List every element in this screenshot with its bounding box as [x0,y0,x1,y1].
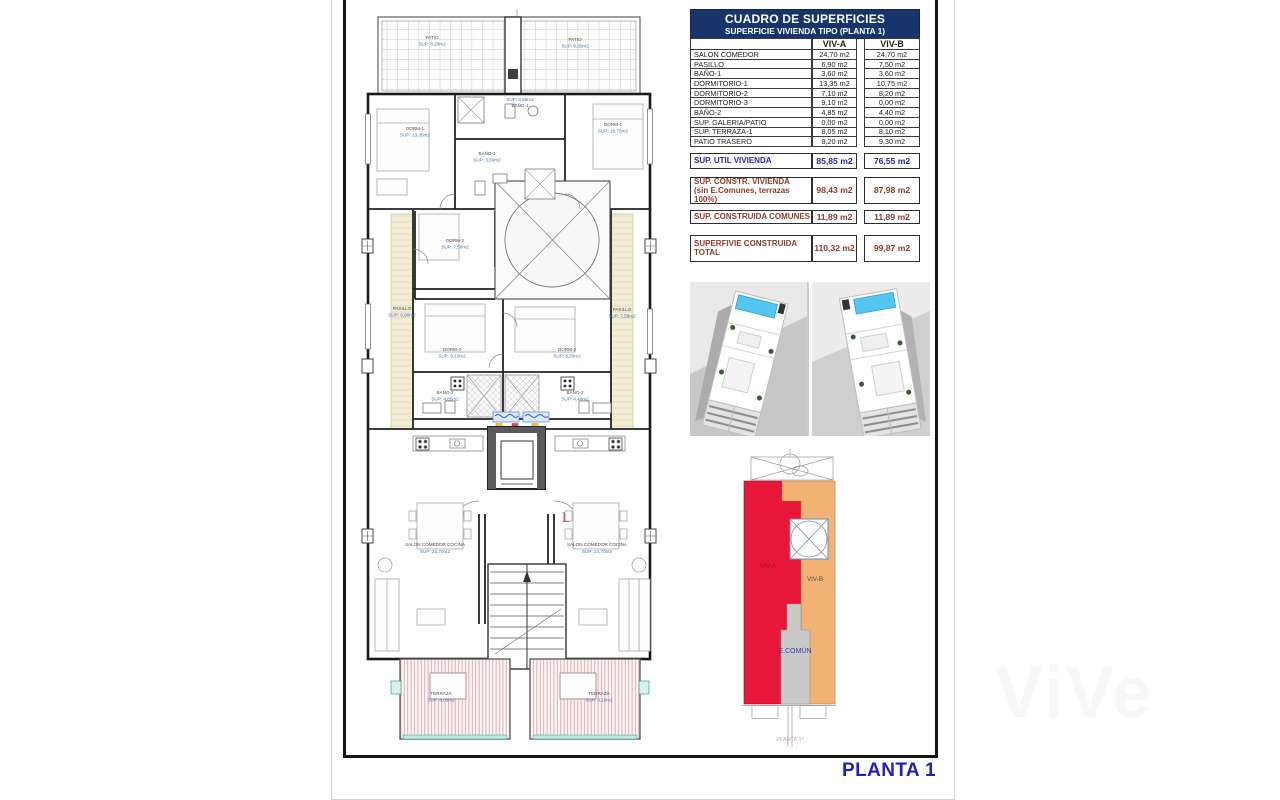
table-subtitle: SUPERFICIE VIVIENDA TIPO (PLANTA 1) [691,26,919,36]
room-sup: SUP: 8,10m2 [585,698,613,703]
room-label: TERRAZA [430,691,452,696]
room-sup: SUP: 8,20m2 [553,354,581,359]
table-cell: 9,30 m2 [864,136,920,147]
summary-label: SUP. CONSTRUIDA COMUNES [690,210,812,224]
summary-label: SUPERFIVIE CONSTRUIDATOTAL [690,235,812,262]
room-sup: SUP: 7,58m2 [608,314,636,319]
summary-value-b: 99,87 m2 [864,235,920,262]
summary-value-a: 85,85 m2 [812,153,857,169]
room-sup: SUP: 24,70m2 [582,549,612,554]
room-label: PASILLO [613,307,632,312]
summary-value-b: 11,89 m2 [864,210,920,224]
room-label: DORM-2 [558,347,577,352]
room-sup: SUP: 24,70m2 [420,549,450,554]
sheet-title: PLANTA 1 [790,760,936,782]
room-sup: SUP: 9,10m2 [438,354,466,359]
room-label: DORM-2 [446,238,465,243]
table-summary-row: SUPERFIVIE CONSTRUIDATOTAL110,32 m299,87… [690,235,920,262]
room-label: DORM-1 [604,122,623,127]
table-summary: SUP. UTIL VIVIENDA85,85 m276,55 m2SUP. C… [690,153,920,262]
diagram-roof-outline [751,449,833,480]
summary-gap [857,235,864,262]
floor-plan: A B [355,9,685,757]
room-label: DORM-1 [406,126,425,131]
room-label: SALON COMEDOR COCINA [567,542,628,547]
room-label: BAÑO-2 [566,389,584,395]
table-cell: PATIO TRASERO [690,136,812,147]
diagram-caption: PLANTA 1ª [776,736,804,743]
summary-gap [857,177,864,204]
summary-label: SUP. CONSTR. VIVIENDA(sin E.Comunes, ter… [690,177,812,204]
patio-block [378,17,640,95]
room-sup: SUP: 3,60m2 [506,97,534,102]
table-title: CUADRO DE SUPERFICIES [691,13,919,26]
diagram-comun-label: E.COMÚN [778,646,811,655]
room-sup: SUP: 4,85m2 [431,397,459,402]
elevator [488,427,545,489]
table-summary-row: SUP. CONSTRUIDA COMUNES11,89 m211,89 m2 [690,210,920,224]
table-cell: 8,20 m2 [812,136,857,147]
table-rows: SALON COMEDOR24,70 m224,70 m2PASILLO6,90… [690,49,920,147]
room-label: PASILLO [393,306,412,311]
room-label: SALON COMEDOR COCINA [405,542,466,547]
room-sup: SUP: 13,35m2 [400,133,430,138]
surfaces-table: CUADRO DE SUPERFICIES SUPERFICIE VIVIEND… [690,9,920,262]
room-label: TERRAZA [588,691,610,696]
room-label: DORM-3 [443,347,462,352]
diagram-viv-a-label: VIV-A [760,563,777,570]
summary-value-b: 76,55 m2 [864,153,920,169]
room-sup: SUP: 6,90m2 [388,313,416,318]
summary-gap [857,153,864,169]
room-label: BAÑO-2 [436,389,454,395]
diagram-viv-b-label: VIV-B [807,576,823,583]
room-label: PATIO [568,37,582,42]
room-sup: SUP: 8,05m2 [427,698,455,703]
room-sup: SUP: 4,40m2 [561,397,589,402]
room-sup: SUP: 3,60m2 [473,158,501,163]
summary-value-a: 98,43 m2 [812,177,857,204]
unit-key-diagram: VIV-A VIV-B E.COMÚN PLANTA 1ª [738,449,848,761]
stairs [488,564,566,669]
table-row: PATIO TRASERO8,20 m29,30 m2 [690,136,920,147]
diagram-elevator [790,519,828,559]
render-images [690,282,930,436]
table-cell-gap [857,136,864,147]
gallery-strip-right [611,214,633,429]
render-image-left [690,282,809,436]
page: { "sheet_title": "PLANTA 1", "watermark"… [0,0,1280,800]
summary-value-a: 110,32 m2 [812,235,857,262]
room-sup: SUP: 7,50m2 [441,245,469,250]
table-summary-row: SUP. UTIL VIVIENDA85,85 m276,55 m2 [690,153,920,169]
summary-label: SUP. UTIL VIVIENDA [690,153,812,169]
surfaces-table-header: CUADRO DE SUPERFICIES SUPERFICIE VIVIEND… [690,9,920,39]
room-label: BAÑO-1 [478,150,496,156]
render-image-right [812,282,931,436]
room-sup: SUP: 10,75m2 [598,129,628,134]
watermark: ViVe [995,652,1154,734]
drawing-frame: A B [343,0,938,758]
room-label: BAÑO-1 [511,102,529,108]
room-sup: SUP: 9,30m2 [561,44,589,49]
summary-value-b: 87,98 m2 [864,177,920,204]
summary-value-a: 11,89 m2 [812,210,857,224]
room-sup: SUP: 8,20m2 [418,42,446,47]
table-summary-row: SUP. CONSTR. VIVIENDA(sin E.Comunes, ter… [690,177,920,204]
summary-gap [857,210,864,224]
room-label: PATIO [425,35,439,40]
gallery-strip-left [391,214,413,429]
